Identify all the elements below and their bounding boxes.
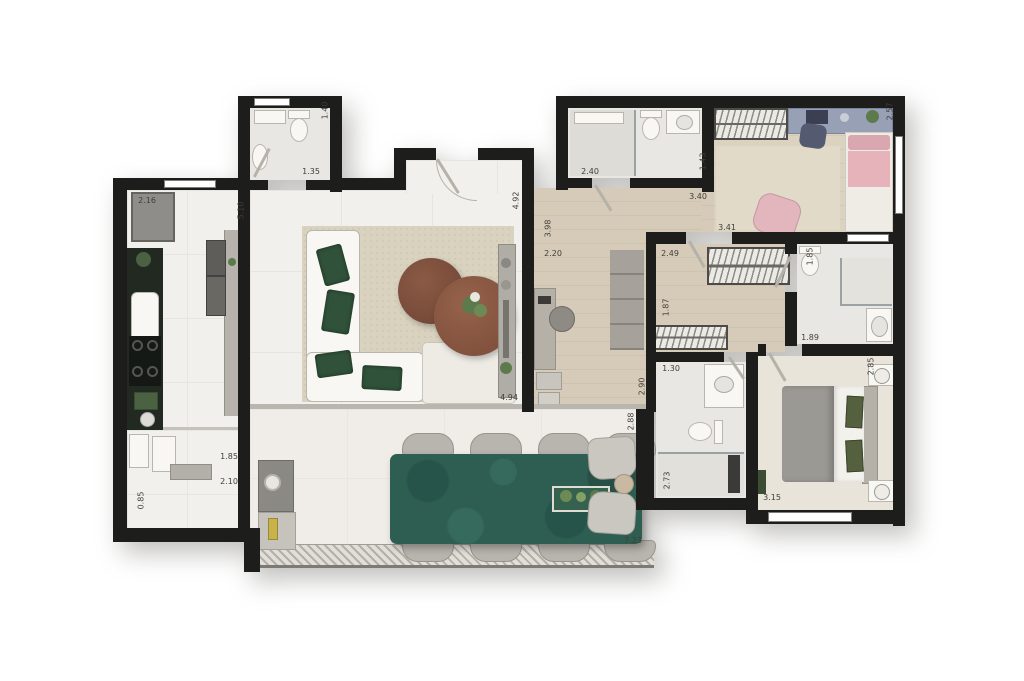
headboard (862, 386, 878, 484)
wall (785, 244, 797, 254)
wall (702, 96, 905, 108)
toilet-bowl-icon (688, 422, 712, 441)
wall (238, 96, 250, 532)
storage-box (536, 372, 562, 390)
oven (206, 276, 226, 316)
wall (113, 528, 260, 542)
office-chair (549, 306, 575, 332)
desk-chair (798, 122, 827, 149)
terrace-armchair (587, 490, 638, 535)
toilet-bowl-icon (290, 118, 308, 142)
wall (522, 148, 534, 412)
herb-box (134, 392, 158, 410)
wall (785, 292, 797, 346)
sofa-pillow (361, 365, 402, 391)
wardrobe (714, 108, 788, 140)
plant-flowers (470, 292, 480, 302)
bedroom1-doorway-floor (702, 192, 714, 232)
wall (746, 352, 758, 512)
burner-icon (147, 366, 158, 377)
side-table (614, 474, 634, 494)
floor-plan: 1.351.402.165.101.852.100.854.923.984.94… (0, 0, 1024, 681)
toilet-tank-icon (714, 420, 723, 444)
lamp-icon (874, 368, 890, 384)
wall (244, 528, 260, 572)
bath-shelf (254, 110, 286, 124)
window (768, 512, 852, 522)
wall (556, 96, 714, 108)
wall (758, 344, 766, 356)
wall (394, 148, 436, 160)
bowl (140, 412, 155, 427)
wall (646, 352, 724, 362)
lamp-icon (874, 484, 890, 500)
bed-pillow-green (845, 440, 864, 473)
monitor-icon (538, 296, 551, 304)
plant-icon (560, 490, 572, 502)
wardrobe (650, 325, 728, 350)
shower-wall (728, 455, 740, 493)
wall (636, 408, 654, 510)
sideboard-basin (264, 474, 281, 491)
shower-bench (574, 112, 624, 124)
bookshelf (610, 250, 644, 350)
plant-icon (866, 110, 879, 123)
wall (646, 244, 656, 412)
wall (113, 178, 127, 542)
plant-icon (228, 258, 236, 266)
burner-icon (147, 340, 158, 351)
washer (129, 434, 149, 468)
burner-icon (132, 340, 143, 351)
laundry-tank (170, 464, 212, 480)
sink-icon (714, 376, 734, 393)
sliding-glass-door (534, 404, 646, 409)
sink-icon (871, 316, 888, 337)
console-decor (501, 280, 511, 290)
wall (556, 178, 592, 188)
plant-icon (576, 492, 586, 502)
shower (840, 258, 892, 306)
wall (336, 178, 400, 190)
plant-icon (136, 252, 151, 267)
bottle-icon (268, 518, 278, 540)
console-decor (503, 300, 509, 358)
window (254, 98, 290, 106)
bed-blanket-pink (848, 151, 890, 187)
wall (556, 96, 568, 190)
terrace-armchair (587, 435, 638, 480)
plant-icon (500, 362, 512, 374)
sliding-glass-door (250, 404, 522, 409)
laptop-icon (806, 110, 828, 124)
service-door (164, 180, 216, 188)
plant-icon (474, 304, 487, 317)
bed-pillow-green (845, 396, 864, 429)
console-decor (501, 258, 511, 268)
sink-icon (676, 115, 693, 130)
oven (206, 240, 226, 276)
toilet-bowl-icon (642, 117, 660, 140)
burner-icon (132, 366, 143, 377)
desk-decor (840, 113, 849, 122)
wall (646, 232, 686, 244)
wall (802, 344, 905, 356)
refrigerator (131, 192, 175, 242)
window (847, 234, 889, 242)
wall (646, 498, 758, 510)
bed-pillow (848, 135, 890, 150)
sofa-pillow (315, 350, 354, 379)
toilet-bowl-icon (801, 253, 819, 276)
wall (630, 178, 714, 188)
bed-blanket-gray (782, 386, 834, 482)
window (895, 136, 903, 214)
